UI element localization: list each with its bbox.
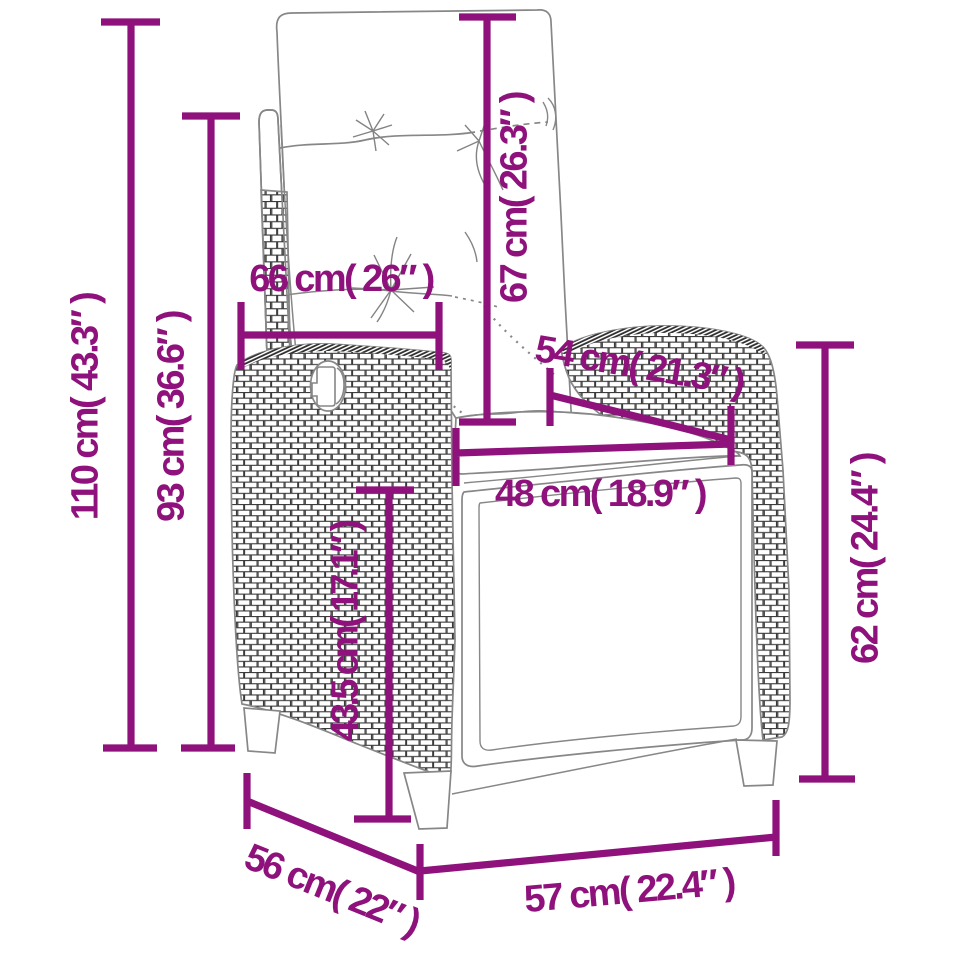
svg-text:93 cm( 36.6″ ): 93 cm( 36.6″ ) [151,311,193,522]
svg-text:110 cm( 43.3″ ): 110 cm( 43.3″ ) [65,293,107,520]
svg-text:66 cm( 26″ ): 66 cm( 26″ ) [249,258,433,300]
svg-text:48 cm( 18.9″ ): 48 cm( 18.9″ ) [495,473,706,515]
svg-text:62 cm( 24.4″ ): 62 cm( 24.4″ ) [845,453,887,664]
svg-text:67 cm( 26.3″ ): 67 cm( 26.3″ ) [494,92,536,303]
svg-text:43.5 cm( 17.1″ ): 43.5 cm( 17.1″ ) [325,521,367,742]
